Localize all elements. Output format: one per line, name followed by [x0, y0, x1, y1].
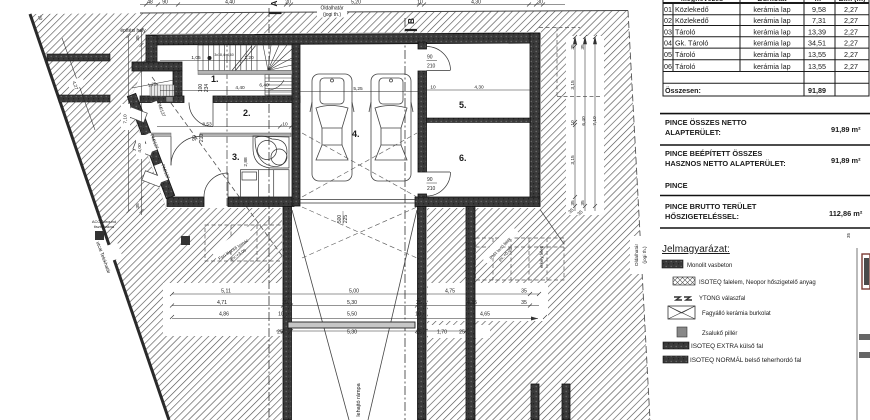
svg-text:5,30: 5,30 — [347, 300, 357, 306]
svg-text:35: 35 — [570, 44, 576, 50]
svg-text:90: 90 — [162, 0, 168, 6]
svg-text:10: 10 — [278, 312, 284, 318]
svg-text:kerámia lap: kerámia lap — [753, 16, 790, 25]
svg-text:kerámia lap: kerámia lap — [753, 50, 790, 59]
svg-text:Jelmagyarázat:: Jelmagyarázat: — [662, 244, 730, 255]
svg-text:01.: 01. — [664, 5, 674, 14]
svg-text:4,30: 4,30 — [471, 0, 481, 6]
svg-text:kerámia lap: kerámia lap — [753, 62, 790, 71]
svg-text:erkély felett: erkély felett — [539, 245, 544, 268]
svg-text:ISOTEQ EXTRA külső fal: ISOTEQ EXTRA külső fal — [691, 343, 763, 350]
svg-text:2,27: 2,27 — [844, 16, 858, 25]
svg-text:10: 10 — [282, 122, 288, 128]
svg-text:HŐSZIGETELÉSSEL:: HŐSZIGETELÉSSEL: — [665, 212, 739, 221]
svg-text:Oldalhatár: Oldalhatár — [320, 6, 343, 12]
svg-text:3,15: 3,15 — [570, 80, 576, 90]
svg-text:112,86 m²: 112,86 m² — [829, 209, 863, 218]
svg-text:210: 210 — [427, 186, 436, 192]
svg-text:5,25: 5,25 — [353, 86, 363, 92]
svg-text:ALAPTERÜLET:: ALAPTERÜLET: — [665, 128, 721, 137]
svg-text:05.: 05. — [664, 50, 674, 59]
svg-text:03.: 03. — [664, 27, 674, 36]
svg-text:6,40: 6,40 — [581, 116, 587, 126]
svg-text:2,27: 2,27 — [844, 62, 858, 71]
svg-text:25: 25 — [277, 330, 283, 336]
svg-text:7,31: 7,31 — [812, 16, 826, 25]
svg-text:1,70: 1,70 — [437, 330, 447, 336]
svg-text:kerámia lap: kerámia lap — [753, 27, 790, 36]
svg-text:02.: 02. — [664, 16, 674, 25]
svg-text:06.: 06. — [664, 62, 674, 71]
svg-text:8,53: 8,53 — [202, 122, 212, 128]
svg-text:5,50: 5,50 — [347, 312, 357, 318]
svg-text:90: 90 — [192, 135, 198, 141]
svg-text:91,89 m²: 91,89 m² — [831, 125, 861, 134]
svg-text:91,89: 91,89 — [808, 86, 826, 95]
svg-text:04.: 04. — [664, 39, 674, 48]
svg-text:25: 25 — [416, 300, 422, 306]
svg-text:ISOTEQ NORMÁL belső teherhordó: ISOTEQ NORMÁL belső teherhordó fal — [690, 355, 801, 364]
svg-text:Gk. Tároló: Gk. Tároló — [675, 39, 708, 48]
svg-text:1,20: 1,20 — [244, 55, 254, 61]
svg-text:5,20: 5,20 — [351, 0, 361, 6]
svg-text:210: 210 — [427, 64, 436, 70]
svg-text:B: B — [406, 18, 416, 24]
svg-text:Összesen:: Összesen: — [665, 86, 701, 95]
svg-text:35: 35 — [570, 200, 576, 206]
svg-text:7,10: 7,10 — [592, 116, 598, 126]
svg-text:Tároló: Tároló — [675, 50, 695, 59]
svg-text:1,05: 1,05 — [191, 55, 201, 61]
svg-text:6,40: 6,40 — [259, 83, 269, 89]
svg-text:(jogi th.): (jogi th.) — [323, 12, 341, 18]
svg-text:5,30: 5,30 — [347, 330, 357, 336]
svg-text:35: 35 — [846, 232, 851, 238]
svg-text:tisztítóakna: tisztítóakna — [94, 224, 115, 229]
svg-text:2,27: 2,27 — [844, 50, 858, 59]
svg-text:lehajtó rámpa: lehajtó rámpa — [356, 382, 362, 416]
svg-text:4.: 4. — [352, 129, 360, 139]
svg-text:35: 35 — [521, 289, 527, 295]
svg-text:234: 234 — [204, 84, 210, 93]
svg-text:PINCE BRUTTO TERÜLET: PINCE BRUTTO TERÜLET — [665, 202, 757, 211]
svg-text:4,30: 4,30 — [474, 84, 484, 90]
svg-text:4,40: 4,40 — [225, 0, 235, 6]
svg-text:48: 48 — [147, 0, 153, 6]
svg-text:25: 25 — [282, 300, 288, 306]
svg-text:2,27: 2,27 — [844, 39, 858, 48]
svg-text:2,27: 2,27 — [844, 5, 858, 14]
svg-text:3,15: 3,15 — [570, 155, 576, 165]
svg-text:34,51: 34,51 — [808, 39, 826, 48]
svg-text:1.: 1. — [211, 74, 219, 84]
svg-text:PINCE: PINCE — [665, 181, 688, 190]
svg-text:Közlekedő: Közlekedő — [675, 5, 709, 14]
svg-text:Fagyálló kerámia burkolat: Fagyálló kerámia burkolat — [702, 311, 771, 317]
svg-text:Tároló: Tároló — [675, 27, 695, 36]
svg-text:210: 210 — [199, 134, 205, 143]
svg-text:7,10: 7,10 — [123, 114, 129, 124]
svg-text:4,40: 4,40 — [235, 85, 245, 91]
svg-text:Közlekedő: Közlekedő — [675, 16, 709, 25]
svg-text:35: 35 — [135, 203, 141, 209]
svg-text:Zsalukő pillér: Zsalukő pillér — [702, 331, 737, 337]
svg-text:13,55: 13,55 — [808, 62, 826, 71]
svg-text:6.: 6. — [459, 153, 467, 163]
svg-text:Tároló: Tároló — [675, 62, 695, 71]
svg-text:PINCE BEÉPÍTETT ÖSSZES: PINCE BEÉPÍTETT ÖSSZES — [665, 149, 762, 158]
svg-text:35: 35 — [135, 35, 141, 41]
svg-text:Burkolat: Burkolat — [757, 0, 787, 3]
svg-text:10: 10 — [417, 0, 423, 6]
svg-text:10: 10 — [570, 120, 576, 126]
svg-text:PINCE ÖSSZES NETTO: PINCE ÖSSZES NETTO — [665, 118, 747, 127]
svg-text:2.: 2. — [243, 108, 251, 118]
svg-text:35: 35 — [580, 200, 586, 206]
svg-text:4,00: 4,00 — [137, 143, 143, 153]
svg-text:m²: m² — [815, 0, 824, 3]
svg-text:25: 25 — [459, 330, 465, 336]
svg-text:(jogi th.): (jogi th.) — [642, 246, 648, 264]
svg-text:4,86: 4,86 — [219, 312, 229, 318]
svg-text:3x18,4=4,60: 3x18,4=4,60 — [214, 53, 233, 57]
svg-text:35: 35 — [521, 300, 527, 306]
svg-text:YTONG válaszfal: YTONG válaszfal — [699, 296, 745, 302]
svg-text:9,58: 9,58 — [812, 5, 826, 14]
svg-text:kerámia lap: kerámia lap — [753, 5, 790, 14]
svg-text:2,27: 2,27 — [844, 27, 858, 36]
svg-text:4,75: 4,75 — [445, 289, 455, 295]
svg-text:25: 25 — [416, 330, 422, 336]
svg-text:ISOTEQ falelem, Neopor hőszige: ISOTEQ falelem, Neopor hőszigetelő anyag — [699, 280, 816, 286]
svg-text:90: 90 — [427, 177, 433, 183]
svg-text:225: 225 — [343, 215, 349, 224]
svg-text:3.: 3. — [232, 152, 240, 162]
svg-text:91,89 m²: 91,89 m² — [831, 156, 861, 165]
svg-text:2,88: 2,88 — [243, 157, 249, 167]
svg-text:20: 20 — [285, 0, 291, 6]
svg-text:90: 90 — [427, 55, 433, 61]
svg-text:Oldalhatár: Oldalhatár — [634, 244, 640, 267]
svg-text:10: 10 — [430, 84, 436, 90]
svg-text:HASZNOS NETTO ALAPTERÜLET:: HASZNOS NETTO ALAPTERÜLET: — [665, 159, 786, 168]
svg-text:35: 35 — [580, 44, 586, 50]
svg-text:30: 30 — [537, 0, 543, 6]
svg-text:Monolit vasbeton: Monolit vasbeton — [687, 263, 732, 269]
svg-text:13,39: 13,39 — [808, 27, 826, 36]
svg-text:10: 10 — [415, 312, 421, 318]
svg-text:4,65: 4,65 — [480, 312, 490, 318]
svg-text:A: A — [269, 0, 279, 6]
svg-text:5,11: 5,11 — [221, 289, 231, 295]
svg-text:4,71: 4,71 — [217, 300, 227, 306]
svg-text:kerámia lap: kerámia lap — [753, 39, 790, 48]
svg-text:5.: 5. — [459, 100, 467, 110]
svg-text:Megnevezés: Megnevezés — [681, 0, 723, 3]
svg-text:5,00: 5,00 — [349, 289, 359, 295]
svg-text:4,35: 4,35 — [467, 300, 477, 306]
svg-text:13,55: 13,55 — [808, 50, 826, 59]
svg-text:B.m (m): B.m (m) — [839, 0, 866, 3]
